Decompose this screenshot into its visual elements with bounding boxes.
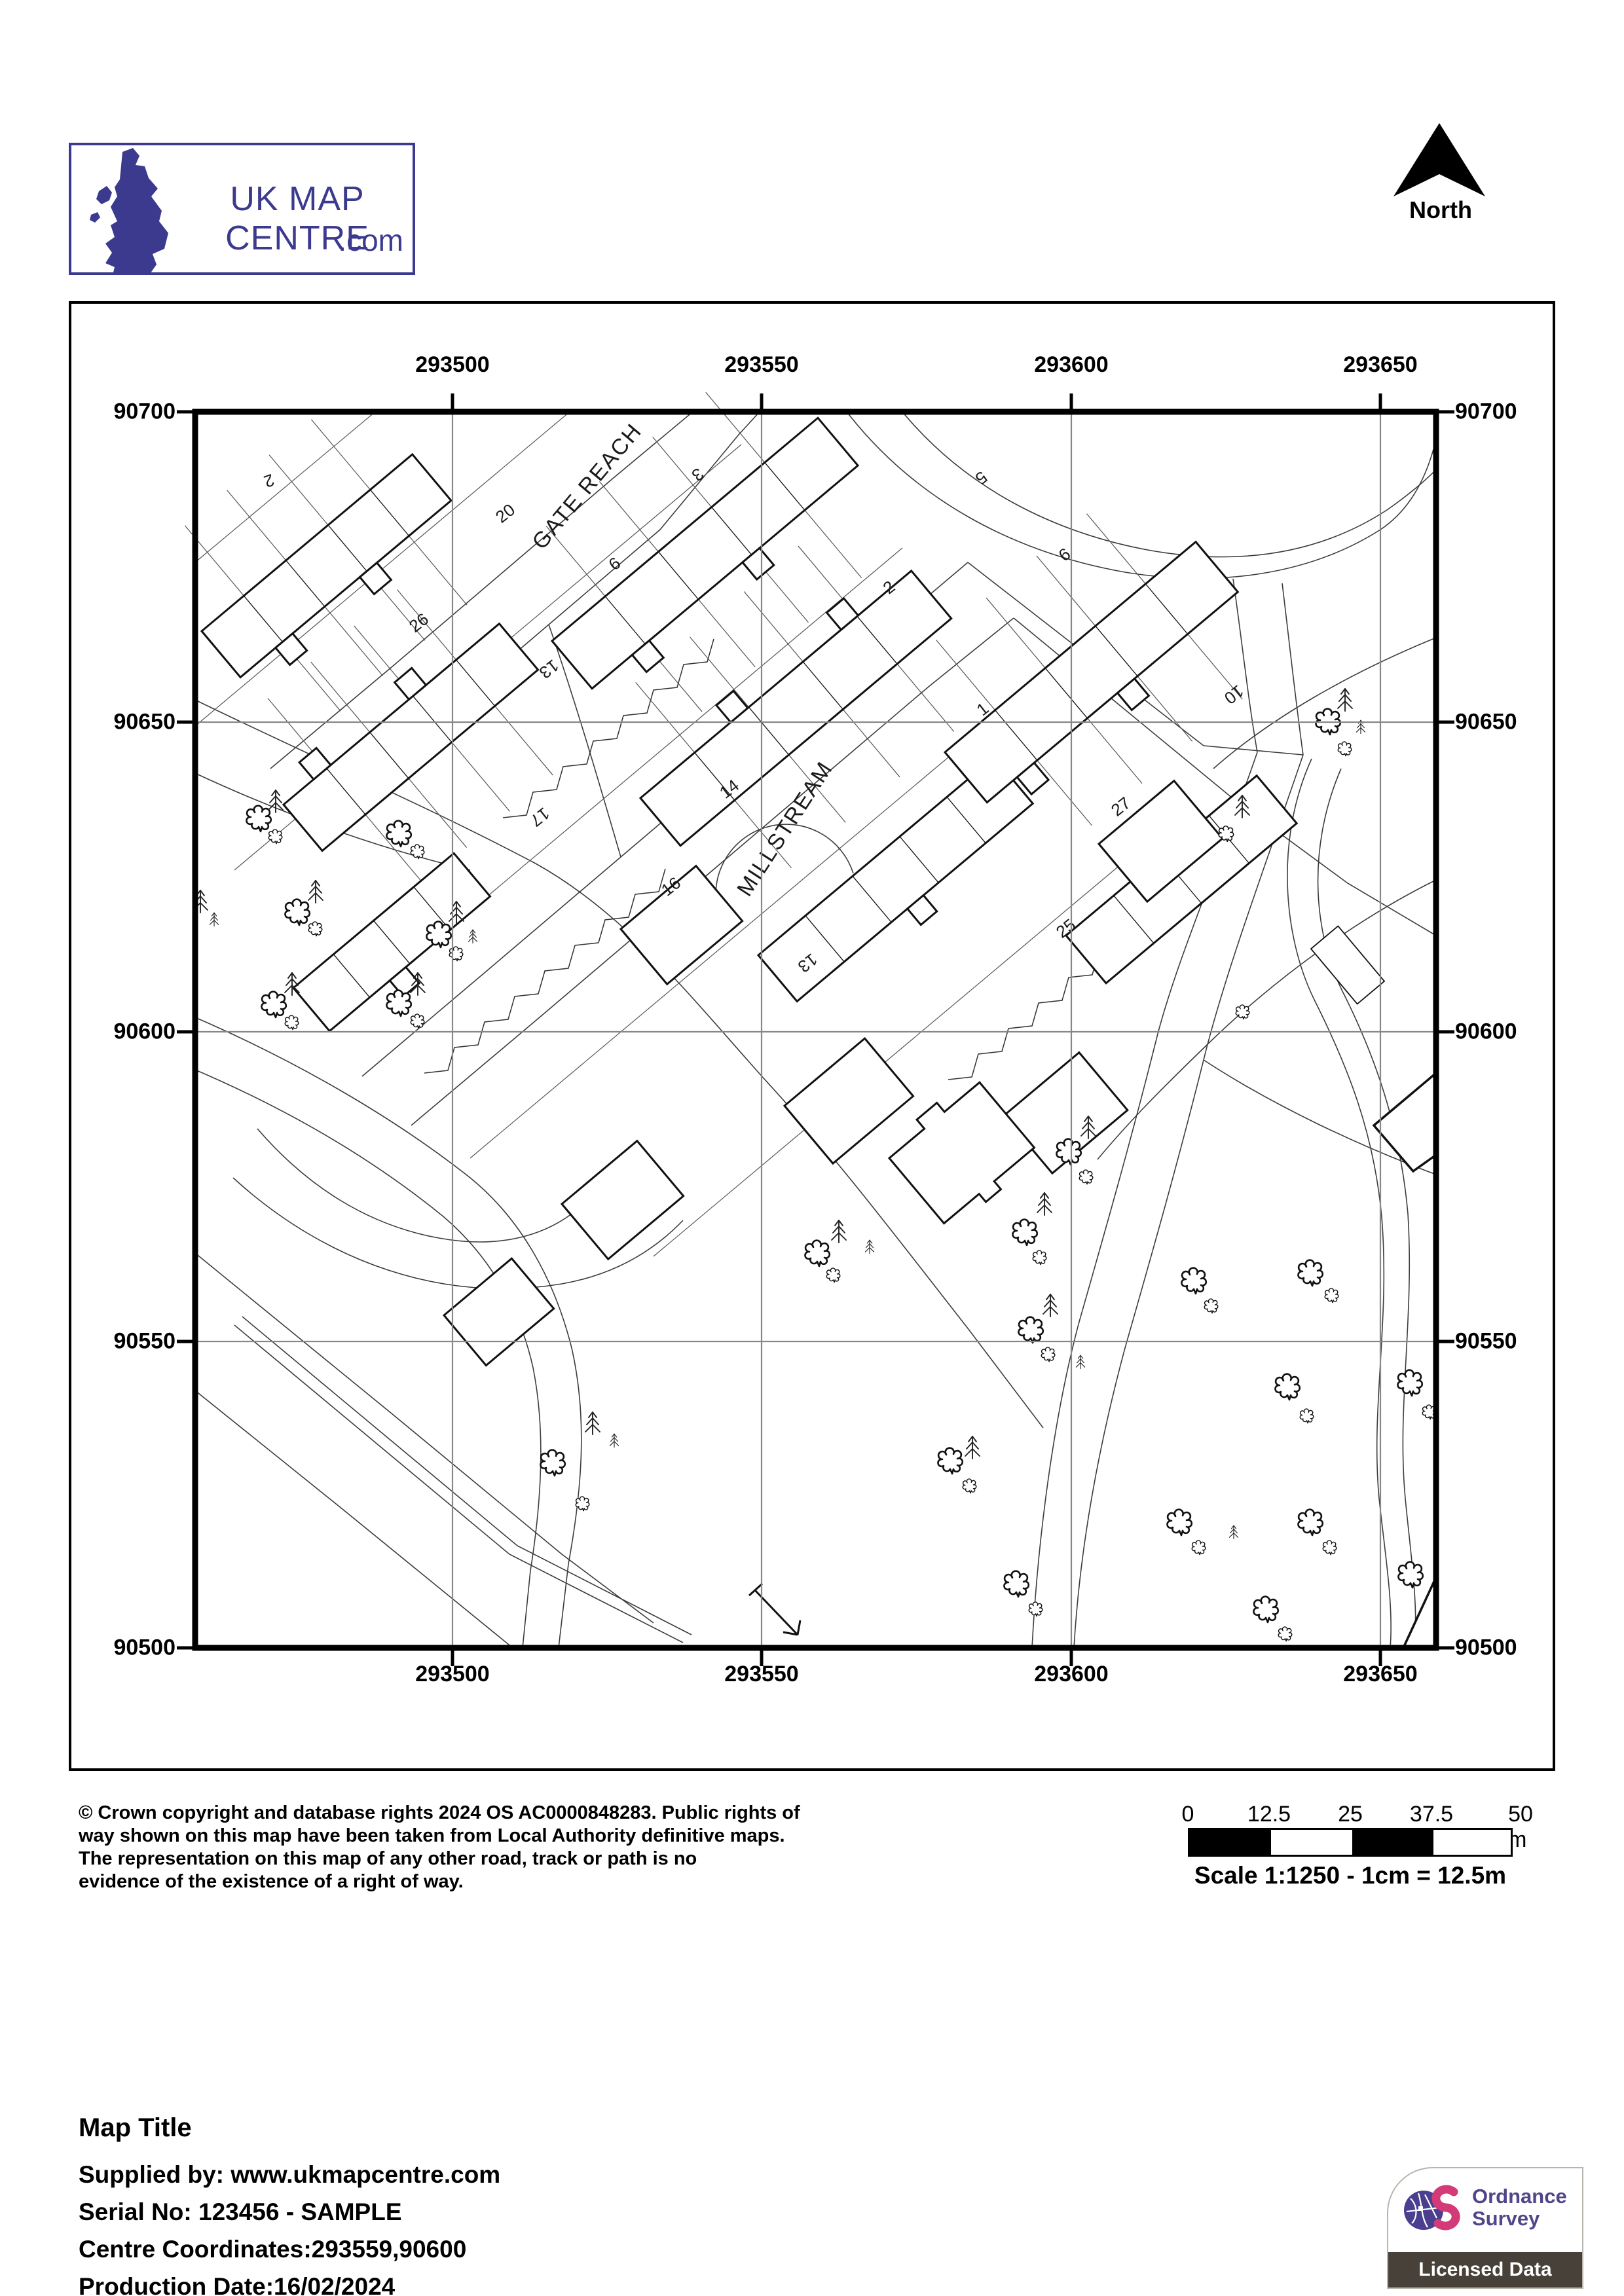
copyright-line: way shown on this map have been taken fr… [79,1825,950,1848]
northing-label-left: 90650 [113,710,175,735]
supplied-by: Supplied by: www.ukmapcentre.com [79,2156,500,2193]
northing-label-left: 90500 [113,1635,175,1661]
northing-label-right: 90650 [1455,710,1517,735]
scale-caption: Scale 1:1250 - 1cm = 12.5m [1188,1862,1513,1889]
northing-label-left: 90700 [113,399,175,425]
northing-label-right: 90600 [1455,1019,1517,1045]
map-canvas: GATE REACH MILLSTREAM 2 20 26 13 17 3 6 … [175,392,1456,1667]
scale-tick: 0 [1182,1802,1194,1827]
flow-arrow-icon [749,1584,800,1635]
north-label: North [1362,196,1519,224]
northing-label-left: 90550 [113,1329,175,1355]
house-number: 10 [1221,681,1247,708]
easting-label-top: 293650 [1343,352,1417,378]
house-number: 6 [605,553,625,575]
house-number: 20 [492,500,519,526]
scale-tick: 37.5 [1410,1802,1453,1827]
north-indicator: North [1362,111,1519,262]
copyright-line: © Crown copyright and database rights 20… [79,1802,950,1825]
scale-bar: 0 12.5 25 37.5 50 m Scale 1:1250 - 1cm =… [1172,1802,1539,1889]
northing-label-right: 90500 [1455,1635,1517,1661]
scale-tick: 25 [1338,1802,1363,1827]
house-number: 17 [526,803,553,830]
scale-tick-labels: 0 12.5 25 37.5 50 m [1172,1802,1539,1828]
buildings [175,392,1436,1648]
street-edges [270,412,1436,1125]
uk-silhouette-icon [83,147,188,274]
field-boundaries [195,412,1436,1648]
centre-coordinates: Centre Coordinates:293559,90600 [79,2231,500,2268]
production-date: Production Date:16/02/2024 [79,2268,500,2296]
os-logo-icon [1399,2180,1477,2246]
easting-label-top: 293500 [415,352,489,378]
ukmapcentre-logo: UK MAP CENTRE .com [69,143,415,275]
copyright-line: The representation on this map of any ot… [79,1848,950,1870]
street-label-gate-reach: GATE REACH [527,418,646,554]
northing-label-right: 90700 [1455,399,1517,425]
north-arrow-icon [1362,111,1519,200]
easting-label-top: 293600 [1034,352,1108,378]
serial-no: Serial No: 123456 - SAMPLE [79,2193,500,2231]
northing-label-right: 90550 [1455,1329,1517,1355]
scale-tick: 12.5 [1247,1802,1291,1827]
licensed-data-band: Licensed Data [1388,2252,1582,2287]
map-details: Map Title Supplied by: www.ukmapcentre.c… [79,2109,500,2296]
house-number: 13 [536,655,563,682]
copyright-note: © Crown copyright and database rights 20… [79,1802,950,1893]
copyright-line: evidence of the existence of a right of … [79,1870,950,1893]
ordnance-survey-badge: Ordnance Survey Licensed Data [1387,2167,1583,2289]
house-number: 27 [1107,793,1134,820]
map-title: Map Title [79,2109,500,2147]
logo-suffix: .com [338,223,403,258]
house-number: 26 [405,609,432,636]
easting-label-top: 293550 [724,352,798,378]
os-logo-text: Ordnance Survey [1472,2185,1567,2230]
northing-label-left: 90600 [113,1019,175,1045]
map-sheet-page: UK MAP CENTRE .com North 293500 293550 2… [0,0,1624,2296]
house-number: 2 [261,470,277,492]
scale-bar-graphic [1188,1828,1513,1857]
grid-lines [195,412,1436,1648]
